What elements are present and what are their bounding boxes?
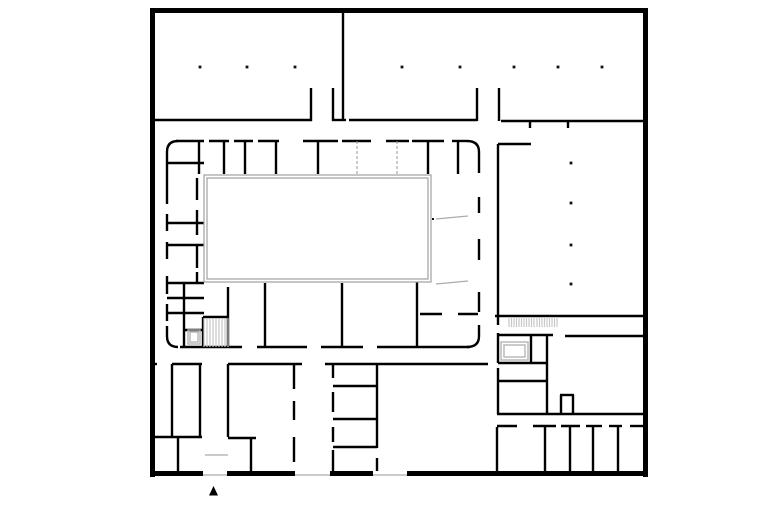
gray-dashed-partitions	[357, 141, 397, 174]
door-pivot-dot	[432, 218, 434, 220]
floor-plan-svg	[0, 0, 780, 520]
courtyard-outline	[204, 175, 431, 282]
interior-walls	[150, 12, 648, 471]
floor-plan-page	[0, 0, 780, 520]
north-entrance-marker	[209, 486, 218, 496]
